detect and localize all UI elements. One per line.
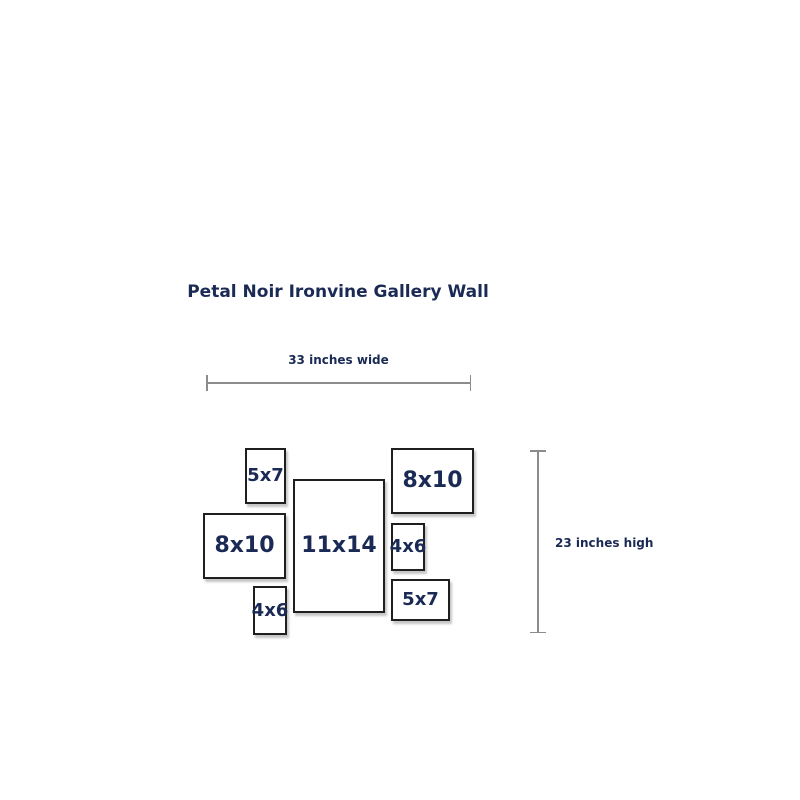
width-line bbox=[206, 382, 471, 384]
frame-4x6-portrait: 4x6 bbox=[391, 523, 425, 571]
frame-size-label: 8x10 bbox=[402, 470, 462, 492]
frame-4x6-portrait: 4x6 bbox=[253, 586, 287, 635]
frame-size-label: 5x7 bbox=[402, 591, 439, 609]
width-dimension-line bbox=[206, 375, 471, 391]
gallery-wall-diagram: Petal Noir Ironvine Gallery Wall 33 inch… bbox=[0, 0, 800, 800]
height-line-bottom-tick bbox=[530, 632, 546, 634]
frame-size-label: 4x6 bbox=[390, 538, 427, 556]
frame-size-label: 4x6 bbox=[252, 602, 289, 620]
frame-5x7-portrait: 5x7 bbox=[245, 448, 286, 504]
width-line-left-tick bbox=[206, 375, 208, 391]
height-dimension-label: 23 inches high bbox=[555, 536, 653, 550]
frame-11x14-portrait: 11x14 bbox=[293, 479, 385, 613]
frame-size-label: 8x10 bbox=[214, 535, 274, 557]
diagram-title: Petal Noir Ironvine Gallery Wall bbox=[187, 282, 489, 302]
height-dimension-line bbox=[530, 450, 546, 633]
frame-5x7-landscape: 5x7 bbox=[391, 579, 450, 621]
height-line-top-tick bbox=[530, 450, 546, 452]
frame-size-label: 11x14 bbox=[301, 535, 376, 557]
frame-8x10-landscape: 8x10 bbox=[203, 513, 286, 579]
height-line bbox=[537, 450, 539, 633]
width-dimension-label: 33 inches wide bbox=[206, 353, 471, 367]
frame-size-label: 5x7 bbox=[247, 467, 284, 485]
frame-8x10-landscape: 8x10 bbox=[391, 448, 474, 514]
width-line-right-tick bbox=[470, 375, 472, 391]
